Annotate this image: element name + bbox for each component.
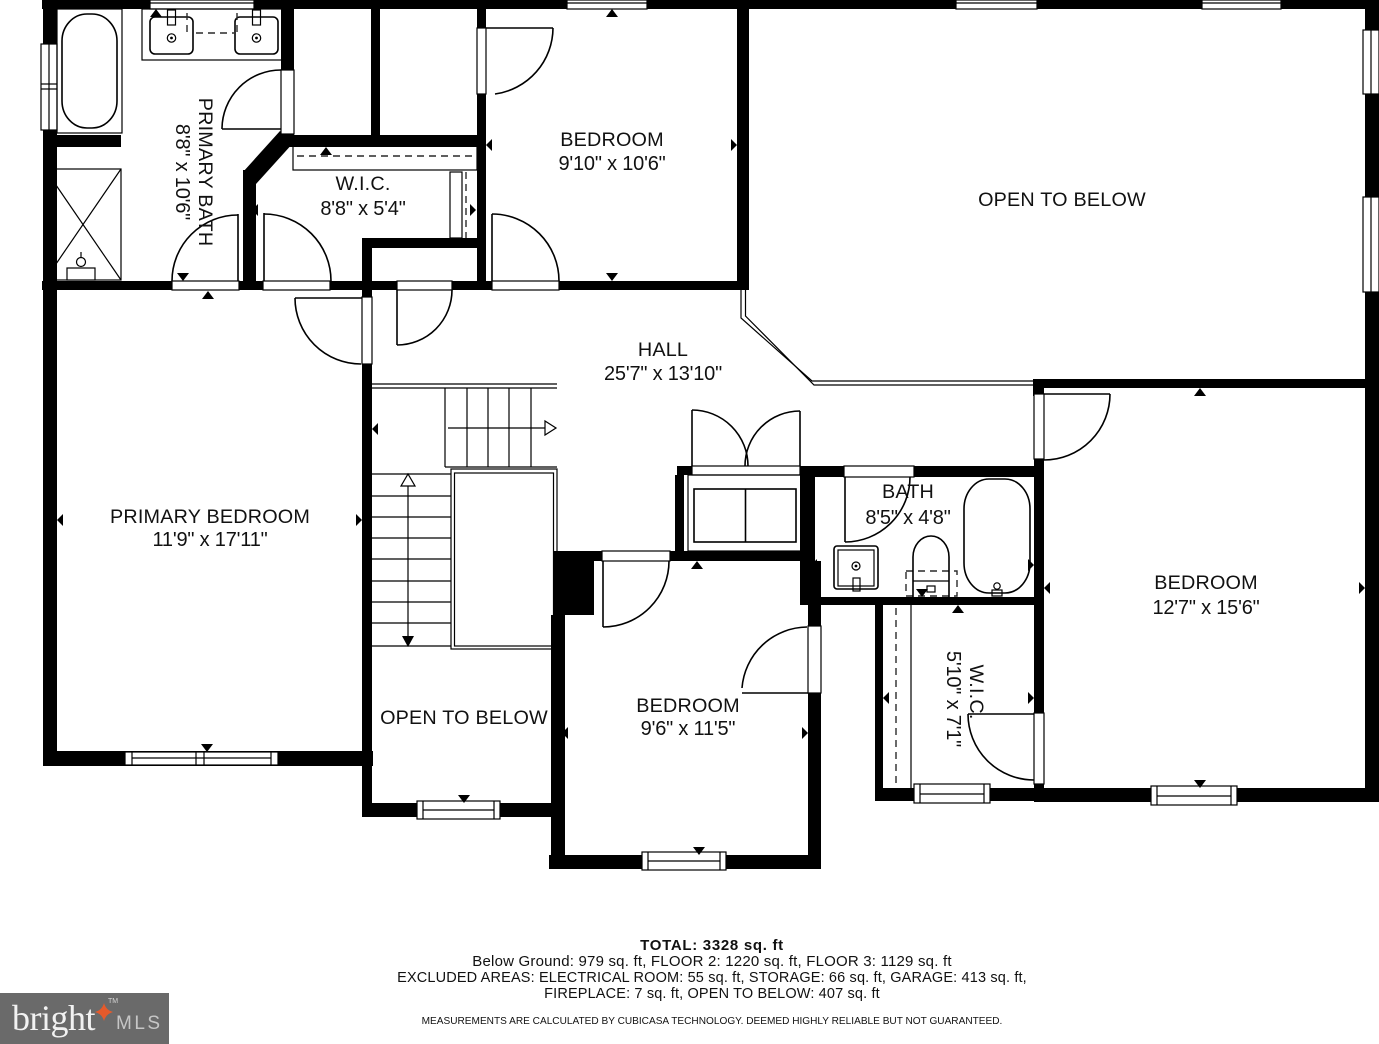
svg-text:HALL: HALL: [638, 339, 688, 361]
svg-text:PRIMARY BEDROOM: PRIMARY BEDROOM: [110, 506, 310, 528]
svg-text:OPEN TO BELOW: OPEN TO BELOW: [978, 189, 1146, 211]
svg-text:BEDROOM: BEDROOM: [636, 695, 740, 717]
svg-text:8'8" x 5'4": 8'8" x 5'4": [320, 198, 405, 220]
svg-text:TOTAL: 3328 sq. ft: TOTAL: 3328 sq. ft: [640, 937, 784, 954]
svg-text:BATH: BATH: [882, 481, 934, 503]
svg-text:FIREPLACE: 7 sq. ft, OPEN TO B: FIREPLACE: 7 sq. ft, OPEN TO BELOW: 407 …: [544, 986, 880, 1002]
svg-text:8'5" x 4'8": 8'5" x 4'8": [865, 507, 950, 529]
svg-text:EXCLUDED AREAS: ELECTRICAL ROO: EXCLUDED AREAS: ELECTRICAL ROOM: 55 sq. …: [397, 970, 1027, 986]
svg-text:9'6" x 11'5": 9'6" x 11'5": [641, 718, 736, 740]
svg-text:BEDROOM: BEDROOM: [1154, 572, 1258, 594]
svg-text:9'10" x 10'6": 9'10" x 10'6": [558, 153, 665, 175]
svg-text:bright: bright: [12, 998, 95, 1038]
svg-text:25'7" x 13'10": 25'7" x 13'10": [604, 363, 722, 385]
svg-text:W.I.C.: W.I.C.: [965, 664, 987, 719]
svg-text:W.I.C.: W.I.C.: [335, 173, 390, 195]
svg-text:MLS: MLS: [116, 1013, 163, 1034]
svg-text:PRIMARY BATH: PRIMARY BATH: [194, 98, 216, 247]
svg-text:OPEN TO BELOW: OPEN TO BELOW: [380, 707, 548, 729]
svg-text:8'8" x 10'6": 8'8" x 10'6": [171, 124, 193, 220]
svg-text:11'9" x 17'11": 11'9" x 17'11": [152, 529, 267, 551]
svg-text:BEDROOM: BEDROOM: [560, 129, 664, 151]
svg-text:MEASUREMENTS ARE CALCULATED BY: MEASUREMENTS ARE CALCULATED BY CUBICASA …: [422, 1016, 1003, 1027]
svg-text:TM: TM: [108, 998, 118, 1005]
svg-text:5'10" x 7'1": 5'10" x 7'1": [942, 651, 964, 747]
svg-text:12'7" x 15'6": 12'7" x 15'6": [1152, 597, 1259, 619]
svg-text:Below Ground: 979 sq. ft, FLOO: Below Ground: 979 sq. ft, FLOOR 2: 1220 …: [472, 953, 952, 970]
